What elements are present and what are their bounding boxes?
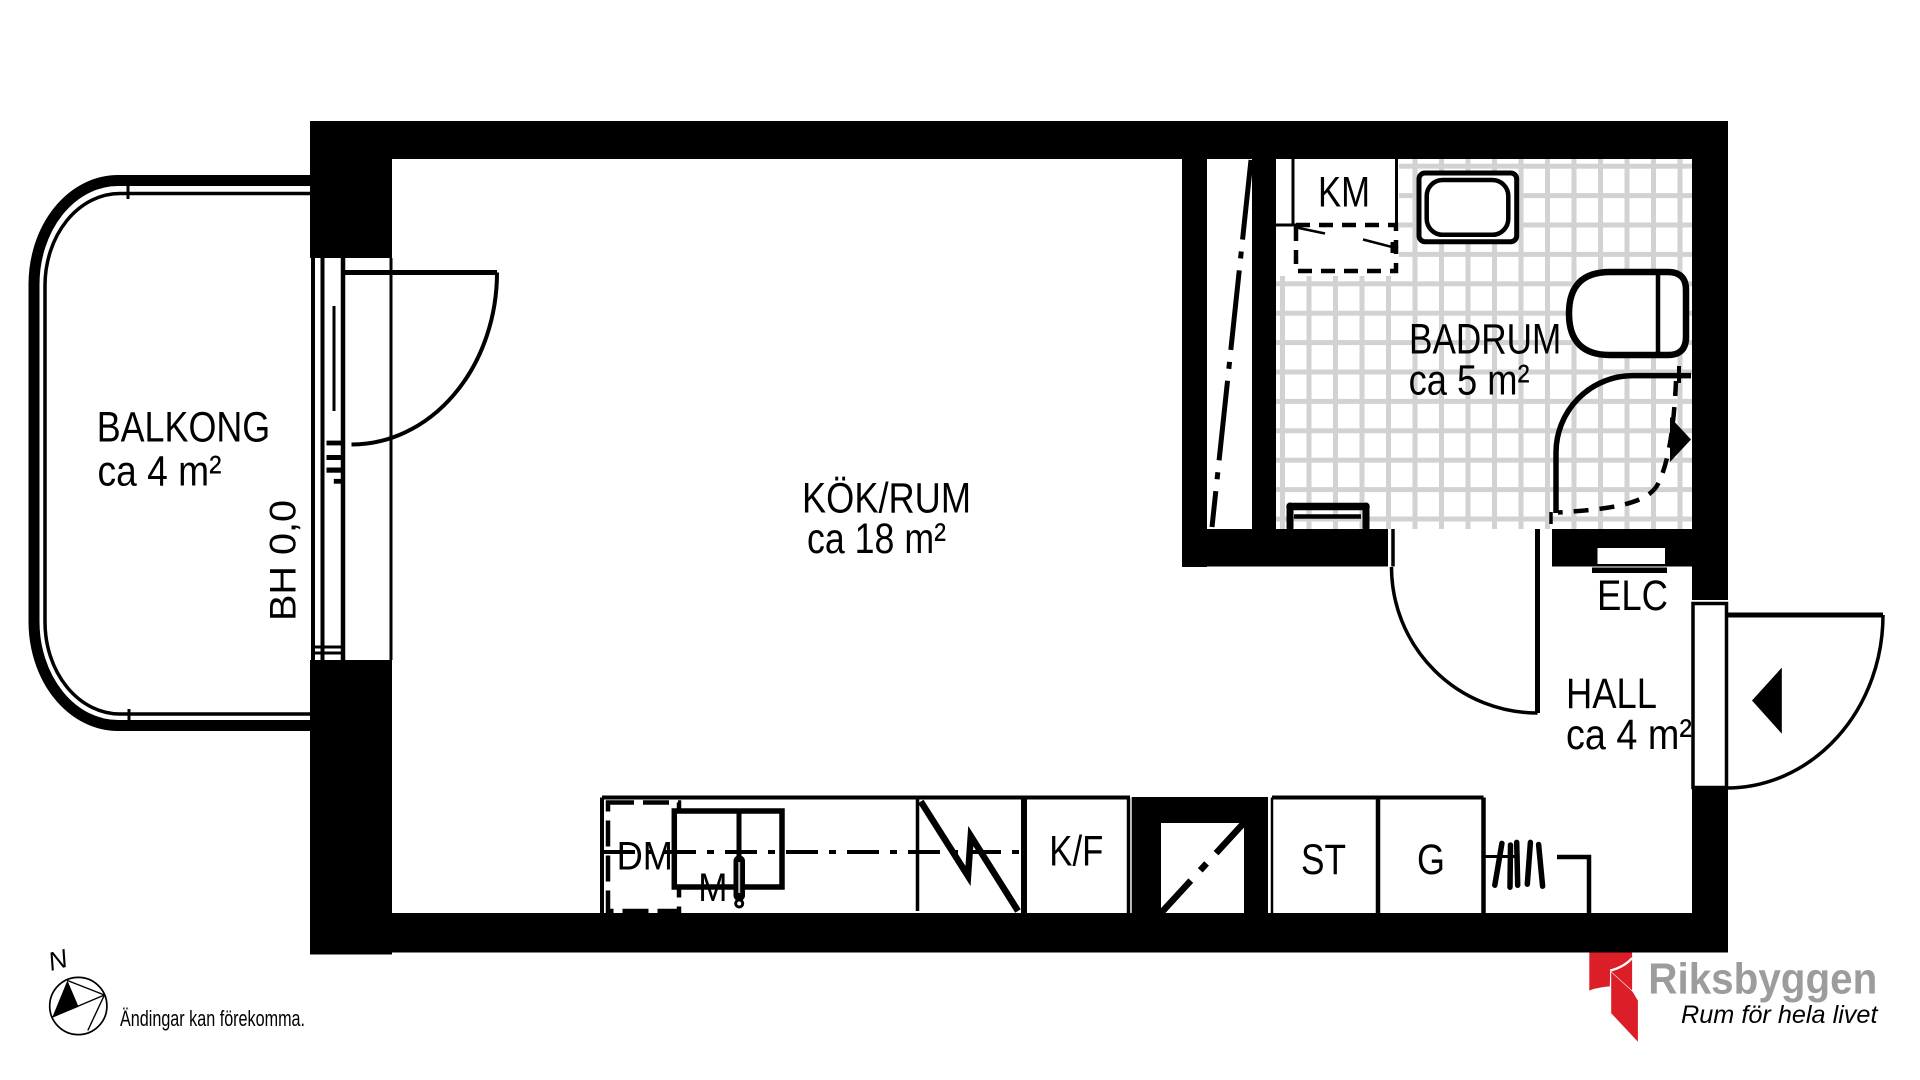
svg-text:Rum för hela livet: Rum för hela livet — [1681, 1001, 1879, 1029]
svg-text:BADRUM: BADRUM — [1409, 316, 1561, 363]
svg-text:KM: KM — [1318, 170, 1370, 217]
svg-text:ST: ST — [1301, 837, 1346, 884]
svg-text:Riksbyggen: Riksbyggen — [1648, 955, 1877, 1004]
svg-text:ca 5 m²: ca 5 m² — [1409, 358, 1530, 405]
svg-text:ELC: ELC — [1597, 573, 1668, 620]
svg-text:BALKONG: BALKONG — [97, 405, 271, 452]
svg-text:HALL: HALL — [1566, 671, 1657, 718]
svg-text:DM: DM — [617, 835, 673, 879]
svg-text:BH 0,0: BH 0,0 — [263, 500, 304, 621]
svg-text:ca 4 m²: ca 4 m² — [98, 448, 222, 495]
svg-text:M: M — [698, 866, 727, 910]
svg-text:K/F: K/F — [1049, 829, 1103, 876]
svg-text:Ändingar kan förekomma.: Ändingar kan förekomma. — [120, 1006, 305, 1031]
svg-text:ca 4 m²: ca 4 m² — [1566, 712, 1692, 759]
svg-text:G: G — [1417, 837, 1445, 884]
svg-text:ca 18 m²: ca 18 m² — [807, 516, 946, 563]
